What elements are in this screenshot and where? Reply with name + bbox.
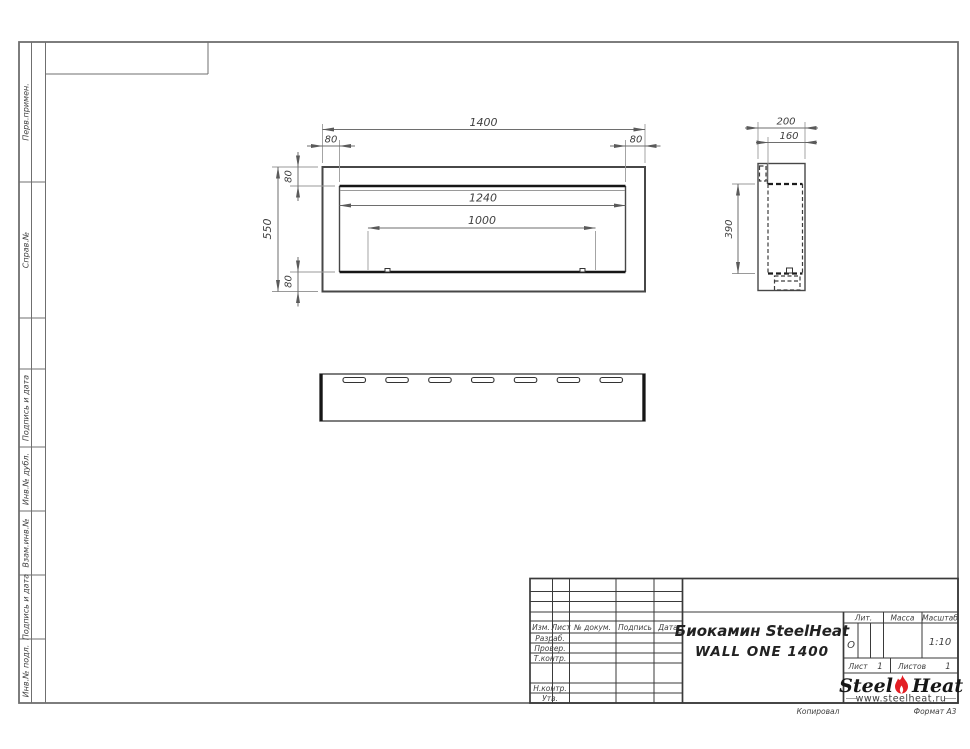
dim-front-height: 550 [261, 219, 274, 240]
sidebar-label-vzam-inv: Взам.инв.№ [22, 518, 31, 567]
tb-row-utv: Утв. [542, 694, 558, 703]
sidebar-labels: Перв.примен. Справ.№ Подпись и дата Инв.… [22, 83, 31, 697]
burner-slot [472, 378, 495, 383]
frame-border [19, 42, 958, 703]
footer-kopiroval: Копировал [797, 707, 840, 716]
bottom-view [320, 374, 645, 421]
sidebar-label-podpis-data-2: Подпись и дата [22, 574, 31, 640]
burner-end-mark-right [580, 269, 585, 273]
document-title-line2: WALL ONE 1400 [695, 644, 829, 660]
logo-website: www.steelheat.ru [856, 694, 947, 705]
sidebar-label-podpis-data-1: Подпись и дата [22, 375, 31, 441]
dim-front-right-offset: 80 [630, 135, 643, 146]
tb-col-docnum: № докум. [573, 623, 611, 632]
sidebar-label-inv-podl: Инв.№ подл. [22, 645, 31, 698]
top-left-stamp-box [46, 42, 209, 74]
sidebar-label-perv-primen: Перв.примен. [22, 83, 31, 141]
tb-sheets-label: Листов [897, 662, 926, 671]
dim-side-inner-depth: 160 [779, 131, 798, 142]
side-view: 200 160 390 [724, 117, 818, 291]
drawing-sheet: Перв.примен. Справ.№ Подпись и дата Инв.… [0, 0, 970, 749]
dim-front-opening-width: 1240 [469, 192, 497, 205]
tb-row-nkontr: Н.контр. [533, 684, 567, 693]
sidebar-label-sprav-no: Справ.№ [22, 232, 31, 268]
tb-sheets-total: 1 [945, 662, 950, 672]
title-block: Изм. Лист № докум. Подпись Дата Разраб. … [530, 579, 963, 705]
tb-col-podpis: Подпись [618, 623, 652, 632]
tb-mass-label: Масса [891, 614, 915, 623]
document-title-line1: Биокамин SteelHeat [675, 622, 850, 640]
dim-front-burner-width: 1000 [468, 214, 496, 227]
tb-row-razrab: Разраб. [535, 634, 564, 643]
drawing-canvas: Перв.примен. Справ.№ Подпись и дата Инв.… [0, 0, 970, 749]
steelheat-logo: Steel Heat www.steelheat.ru [839, 675, 963, 705]
footer-format: Формат А3 [914, 707, 957, 716]
sheet-footer: Копировал Формат А3 [797, 707, 957, 716]
side-hidden-detail-top [760, 166, 767, 181]
drawing-frame [19, 42, 958, 703]
tb-row-prover: Провер. [534, 644, 565, 653]
tb-col-izm: Изм. [532, 623, 550, 632]
tb-scale-label: Масштаб [922, 614, 958, 623]
tb-sheet-number: 1 [877, 662, 882, 672]
dim-side-depth: 200 [776, 117, 795, 128]
tb-lit-value: О [847, 640, 855, 651]
front-view: 1400 80 80 550 80 80 1240 1 [261, 116, 661, 307]
tb-scale-value: 1:10 [929, 637, 951, 648]
tb-col-list: Лист [550, 623, 571, 632]
burner-slot [429, 378, 452, 383]
flame-icon [895, 675, 908, 694]
tb-lit-label: Лит. [854, 614, 872, 623]
side-burner-box-hidden [775, 276, 801, 290]
side-outer-contour [758, 164, 805, 291]
tb-row-tkontr: Т.контр. [534, 654, 567, 663]
dim-front-bottom-offset: 80 [284, 275, 295, 288]
dim-front-total-width: 1400 [470, 116, 498, 129]
sidebar-label-inv-dubl: Инв.№ дубл. [22, 453, 31, 505]
burner-slot [343, 378, 366, 383]
burner-end-mark-left [385, 269, 390, 273]
burner-slot [386, 378, 409, 383]
burner-slot [557, 378, 580, 383]
dim-side-height: 390 [724, 219, 735, 238]
side-igniter-mark [787, 268, 793, 273]
burner-slot [514, 378, 537, 383]
burner-slot [600, 378, 623, 383]
dim-front-top-offset: 80 [284, 170, 295, 183]
dim-front-left-offset: 80 [325, 135, 338, 146]
tb-sheet-label: Лист [847, 662, 868, 671]
